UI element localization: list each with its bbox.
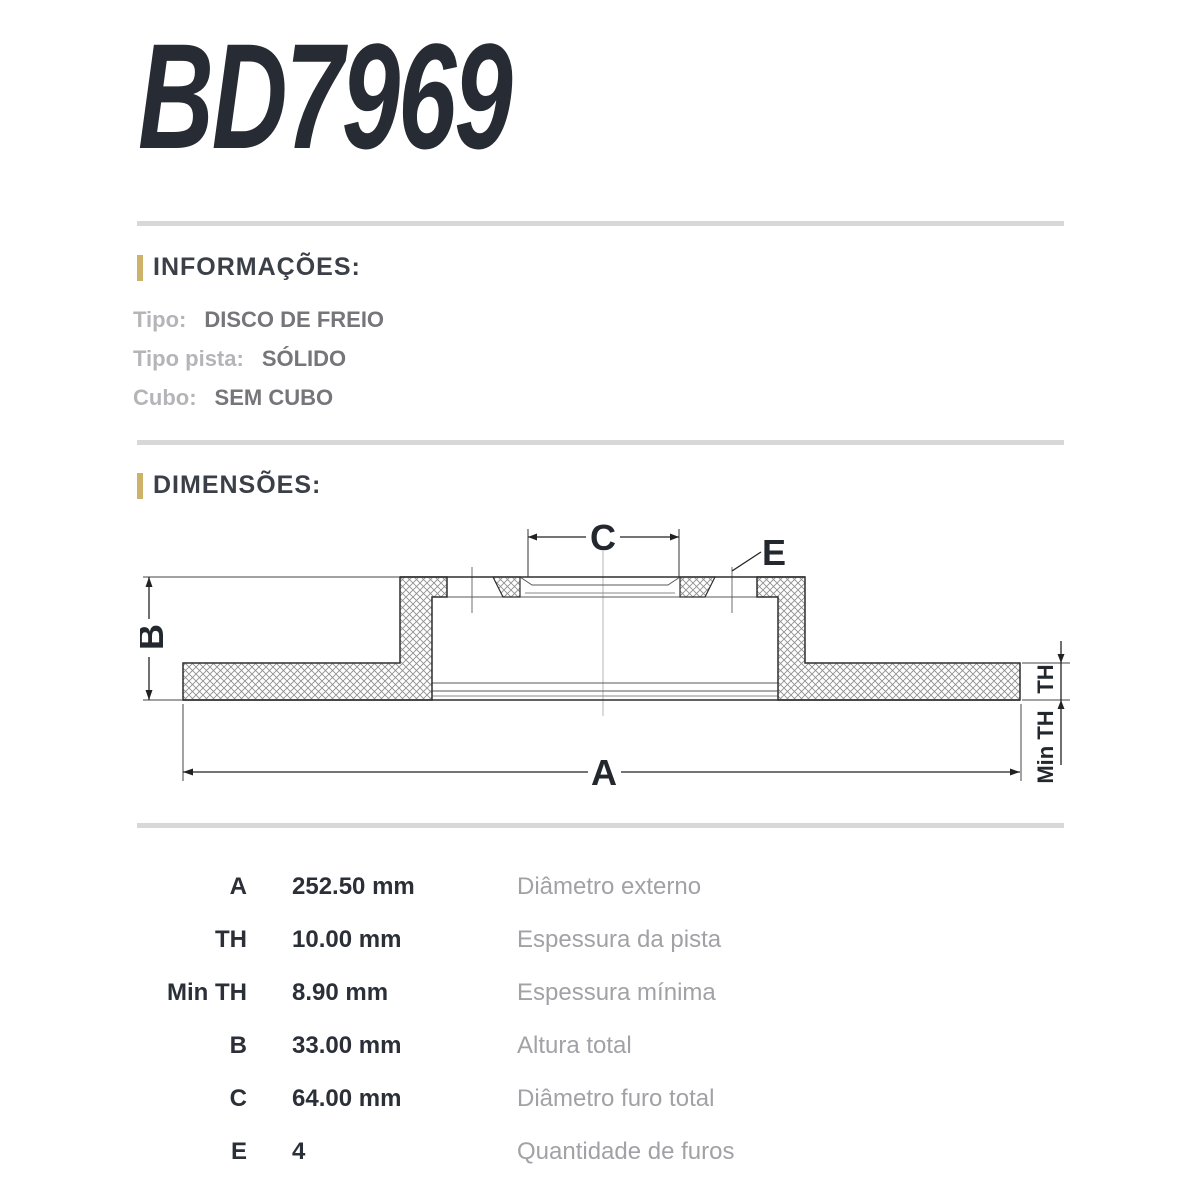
info-label: Tipo pista: — [133, 346, 244, 371]
divider-bottom — [137, 823, 1064, 828]
dimension-label-a: A — [591, 752, 617, 793]
info-label: Tipo: — [133, 307, 186, 332]
dimension-value: 252.50 mm — [292, 873, 508, 901]
table-row: B 33.00 mm Altura total — [140, 1019, 735, 1072]
dimension-letter: Min TH — [140, 979, 247, 1007]
dimension-value: 4 — [292, 1138, 508, 1166]
dimension-description: Diâmetro furo total — [517, 1085, 714, 1113]
divider-middle — [137, 440, 1064, 445]
dimension-value: 64.00 mm — [292, 1085, 508, 1113]
dimensions-section-title: DIMENSÕES: — [153, 471, 321, 500]
info-section-header: INFORMAÇÕES: — [137, 253, 361, 282]
info-list: Tipo:DISCO DE FREIO Tipo pista:SÓLIDO Cu… — [133, 300, 384, 417]
brake-disc-cross-section-drawing: C E B A — [140, 513, 1080, 805]
info-label: Cubo: — [133, 385, 197, 410]
divider-top — [137, 221, 1064, 226]
info-row-cubo: Cubo:SEM CUBO — [133, 378, 384, 417]
dimension-description: Quantidade de furos — [517, 1138, 735, 1166]
dimension-letter: TH — [140, 926, 247, 954]
table-row: C 64.00 mm Diâmetro furo total — [140, 1072, 735, 1125]
dimension-label-min-th: Min TH — [1033, 710, 1058, 783]
dimension-label-th: TH — [1033, 664, 1058, 693]
dimension-description: Diâmetro externo — [517, 873, 701, 901]
dimension-description: Espessura mínima — [517, 979, 716, 1007]
dimension-letter: E — [140, 1138, 247, 1166]
dimensions-table: A 252.50 mm Diâmetro externo TH 10.00 mm… — [140, 860, 735, 1178]
accent-bar-icon — [137, 473, 143, 499]
dimension-letter: B — [140, 1032, 247, 1060]
dimension-letter: C — [140, 1085, 247, 1113]
spec-sheet: BD7969 INFORMAÇÕES: Tipo:DISCO DE FREIO … — [0, 0, 1200, 1200]
dimensions-section-header: DIMENSÕES: — [137, 471, 321, 500]
dimension-th-min-th: TH Min TH — [1022, 641, 1070, 784]
dimension-label-e: E — [762, 532, 786, 573]
dimension-e: E — [732, 532, 786, 573]
dimension-value: 8.90 mm — [292, 979, 508, 1007]
dimension-label-b: B — [140, 624, 171, 650]
hatched-section-left — [183, 577, 447, 700]
hatched-section-right — [757, 577, 1020, 700]
part-number-title: BD7969 — [138, 21, 511, 171]
info-row-tipo: Tipo:DISCO DE FREIO — [133, 300, 384, 339]
info-value: DISCO DE FREIO — [204, 307, 384, 332]
accent-bar-icon — [137, 255, 143, 281]
info-row-tipo-pista: Tipo pista:SÓLIDO — [133, 339, 384, 378]
dimension-description: Altura total — [517, 1032, 632, 1060]
info-value: SEM CUBO — [215, 385, 334, 410]
dimension-value: 33.00 mm — [292, 1032, 508, 1060]
hatched-section-between-holes-right — [680, 577, 715, 597]
dimension-label-c: C — [590, 517, 616, 558]
table-row: A 252.50 mm Diâmetro externo — [140, 860, 735, 913]
table-row: E 4 Quantidade de furos — [140, 1125, 735, 1178]
hatched-section-between-holes-left — [493, 577, 520, 597]
dimension-value: 10.00 mm — [292, 926, 508, 954]
dimension-a: A — [183, 704, 1021, 793]
dimension-description: Espessura da pista — [517, 926, 721, 954]
dimension-letter: A — [140, 873, 247, 901]
table-row: TH 10.00 mm Espessura da pista — [140, 913, 735, 966]
table-row: Min TH 8.90 mm Espessura mínima — [140, 966, 735, 1019]
info-section-title: INFORMAÇÕES: — [153, 253, 361, 282]
info-value: SÓLIDO — [262, 346, 346, 371]
center-bore-edge — [520, 577, 680, 585]
